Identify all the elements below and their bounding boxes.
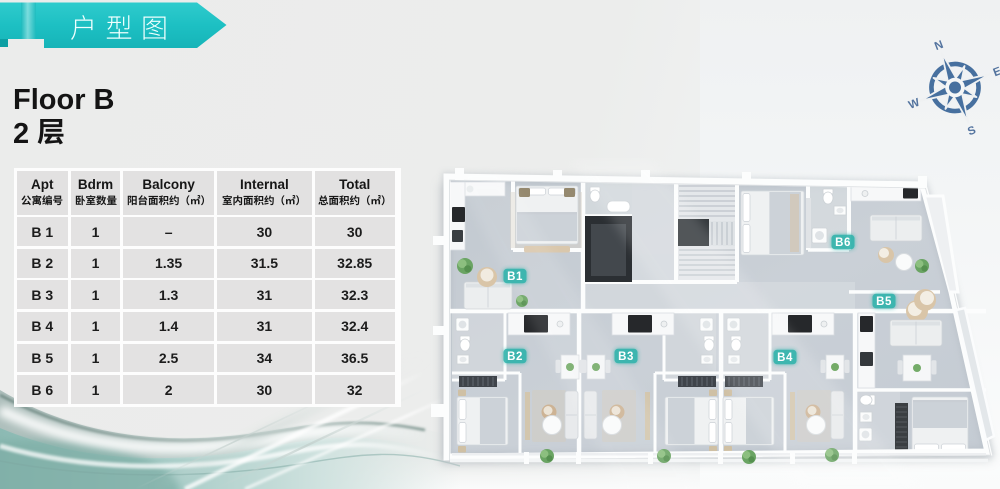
svg-text:N: N — [933, 39, 945, 53]
svg-text:B3: B3 — [618, 351, 634, 363]
svg-text:B2: B2 — [507, 351, 523, 363]
svg-text:E: E — [992, 65, 1000, 79]
svg-text:W: W — [907, 97, 922, 112]
svg-text:B5: B5 — [876, 296, 892, 308]
svg-text:S: S — [966, 124, 978, 138]
svg-text:B6: B6 — [835, 237, 851, 249]
svg-text:B4: B4 — [777, 352, 793, 364]
svg-text:B1: B1 — [507, 271, 523, 283]
